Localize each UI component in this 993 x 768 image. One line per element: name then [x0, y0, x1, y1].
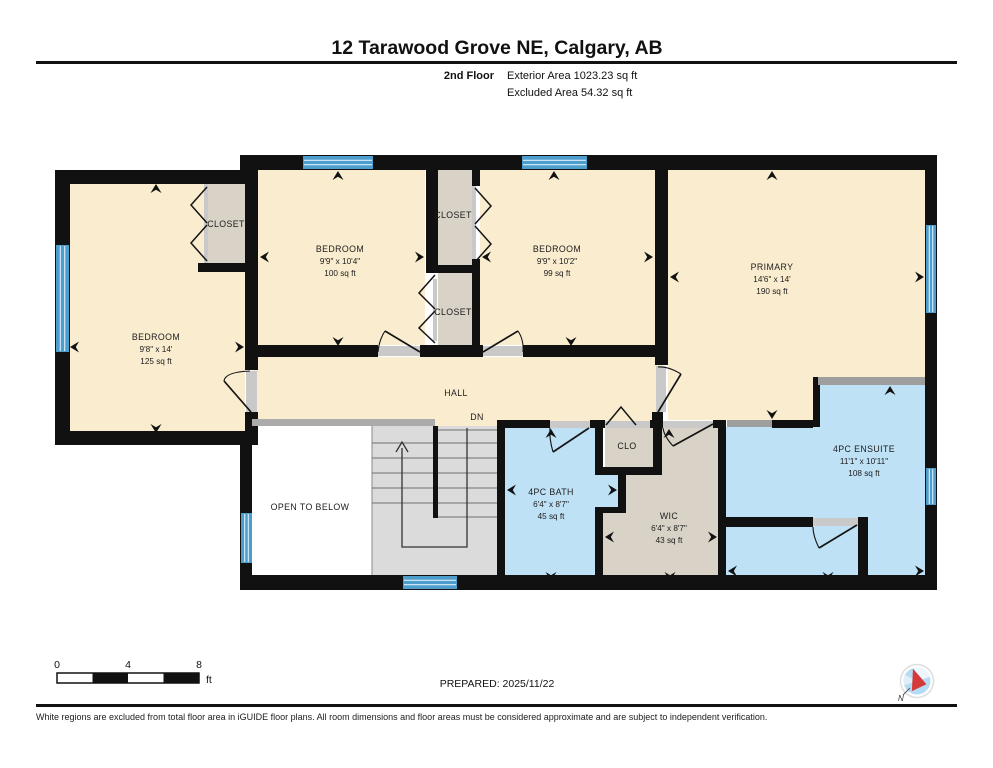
stair-railing: [252, 419, 435, 426]
bath-name: 4PC BATH: [528, 487, 574, 497]
open-to-below-label: OPEN TO BELOW: [271, 502, 350, 512]
wic-name: WIC: [660, 511, 679, 521]
primary-ensuite-cased-opening: [818, 377, 925, 385]
window-icon-3: [241, 513, 252, 563]
floor-plan-canvas: 12 Tarawood Grove NE, Calgary, AB 2nd Fl…: [0, 0, 993, 768]
exterior-area: Exterior Area 1023.23 sq ft: [507, 70, 637, 82]
bath-dims: 6'4" x 8'7": [533, 500, 569, 509]
header: 12 Tarawood Grove NE, Calgary, AB 2nd Fl…: [36, 37, 957, 99]
bath-area: 45 sq ft: [538, 512, 566, 521]
ensuite-inner-door-opening: [813, 518, 858, 526]
compass-north-label: N: [898, 694, 904, 703]
scale-bar: 0 4 8 ft: [54, 659, 212, 686]
window-icon-0: [303, 156, 373, 169]
primary-dims: 14'6" x 14': [753, 275, 791, 284]
wic-door-opening: [663, 421, 713, 428]
room-open-to-below: [252, 426, 372, 575]
scale-segment-dark-2: [164, 673, 200, 683]
bedroom-mid-name: BEDROOM: [316, 244, 364, 254]
closet-left-label: CLOSET: [207, 219, 245, 229]
floor-label: 2nd Floor: [444, 70, 495, 82]
scale-0: 0: [54, 659, 60, 671]
excluded-area: Excluded Area 54.32 sq ft: [507, 87, 632, 99]
primary-area: 190 sq ft: [756, 287, 788, 296]
scale-unit: ft: [206, 674, 212, 686]
footer: 0 4 8 ft PREPARED: 2025/11/22 N White re…: [36, 659, 957, 722]
window-icon-6: [926, 468, 936, 505]
disclaimer-text: White regions are excluded from total fl…: [36, 712, 767, 722]
wic-dims: 6'4" x 8'7": [651, 524, 687, 533]
bedroom-left-door-opening: [246, 371, 257, 412]
page-title: 12 Tarawood Grove NE, Calgary, AB: [331, 37, 662, 59]
ensuite-left-cased-opening: [727, 420, 772, 427]
bedroom-right-name: BEDROOM: [533, 244, 581, 254]
bedroom-right-dims: 9'9" x 10'2": [537, 257, 577, 266]
primary-door-opening: [656, 366, 666, 412]
closet-bottom-label: CLOSET: [434, 307, 472, 317]
scale-segment-dark-1: [93, 673, 129, 683]
bath-door-opening: [550, 421, 590, 428]
window-icon-5: [926, 225, 936, 313]
bedroom-right-area: 99 sq ft: [544, 269, 572, 278]
scale-8: 8: [196, 659, 202, 671]
header-rule: [36, 61, 957, 64]
ensuite-name: 4PC ENSUITE: [833, 444, 895, 454]
bedroom-left-dims: 9'8" x 14': [140, 345, 173, 354]
clo-door-opening: [605, 421, 650, 428]
scale-4: 4: [125, 659, 131, 671]
stairs-dn-label: DN: [470, 412, 484, 422]
bedroom-mid-dims: 9'9" x 10'4": [320, 257, 360, 266]
primary-name: PRIMARY: [751, 262, 794, 272]
clo-label: CLO: [617, 441, 636, 451]
bedroom-left-area: 125 sq ft: [140, 357, 172, 366]
bedroom-left-name: BEDROOM: [132, 332, 180, 342]
wic-area: 43 sq ft: [656, 536, 684, 545]
closet-top-label: CLOSET: [434, 210, 472, 220]
prepared-date: PREPARED: 2025/11/22: [440, 678, 555, 690]
compass-icon: N: [896, 660, 938, 703]
window-icon-4: [403, 576, 457, 589]
floor-plan-page: 12 Tarawood Grove NE, Calgary, AB 2nd Fl…: [0, 0, 993, 768]
footer-rule: [36, 704, 957, 707]
window-icon-2: [56, 245, 69, 352]
bedroom-mid-area: 100 sq ft: [324, 269, 356, 278]
hall-label: HALL: [444, 388, 468, 398]
ensuite-dims: 11'1" x 10'11": [840, 457, 888, 466]
window-icon-1: [522, 156, 587, 169]
ensuite-area: 108 sq ft: [848, 469, 880, 478]
